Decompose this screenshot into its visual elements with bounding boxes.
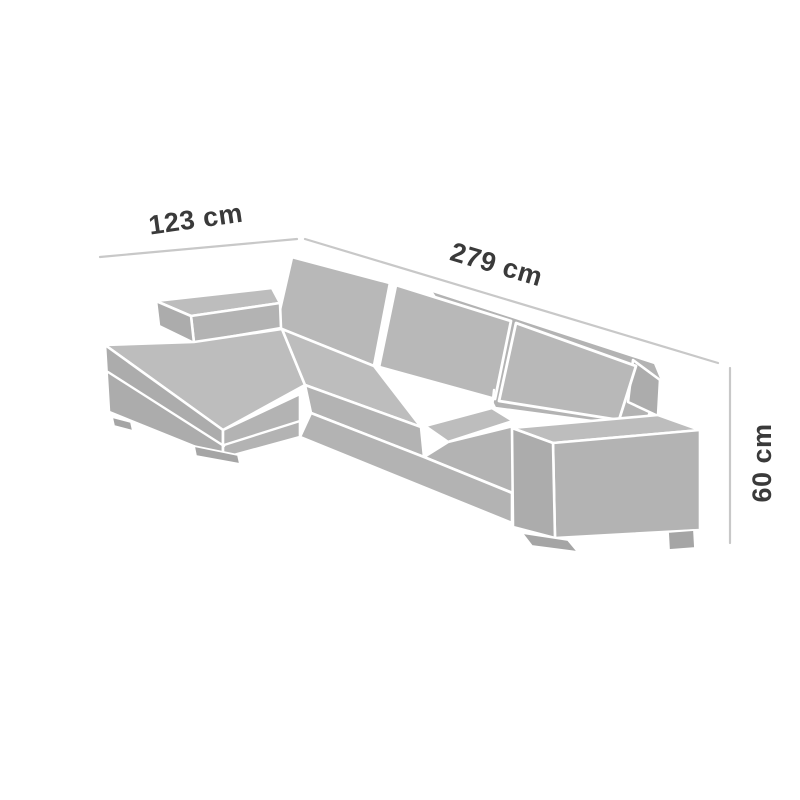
- sofa-dimension-illustration: 123 cm 279 cm 60 cm: [0, 0, 800, 800]
- leg-armrest-right: [668, 530, 695, 550]
- dimension-diagram: 123 cm 279 cm 60 cm: [0, 0, 800, 800]
- chaise-depth-label: 123 cm: [147, 198, 245, 241]
- back-cushion-middle: [379, 285, 511, 399]
- armrest-front-face: [553, 430, 700, 538]
- right-armrest: [512, 415, 700, 538]
- height-label: 60 cm: [747, 423, 777, 502]
- chaise-depth-dimension-line: [100, 239, 297, 257]
- width-label: 279 cm: [447, 237, 546, 293]
- chaise-section: [105, 329, 305, 458]
- armrest-left-face: [512, 428, 555, 538]
